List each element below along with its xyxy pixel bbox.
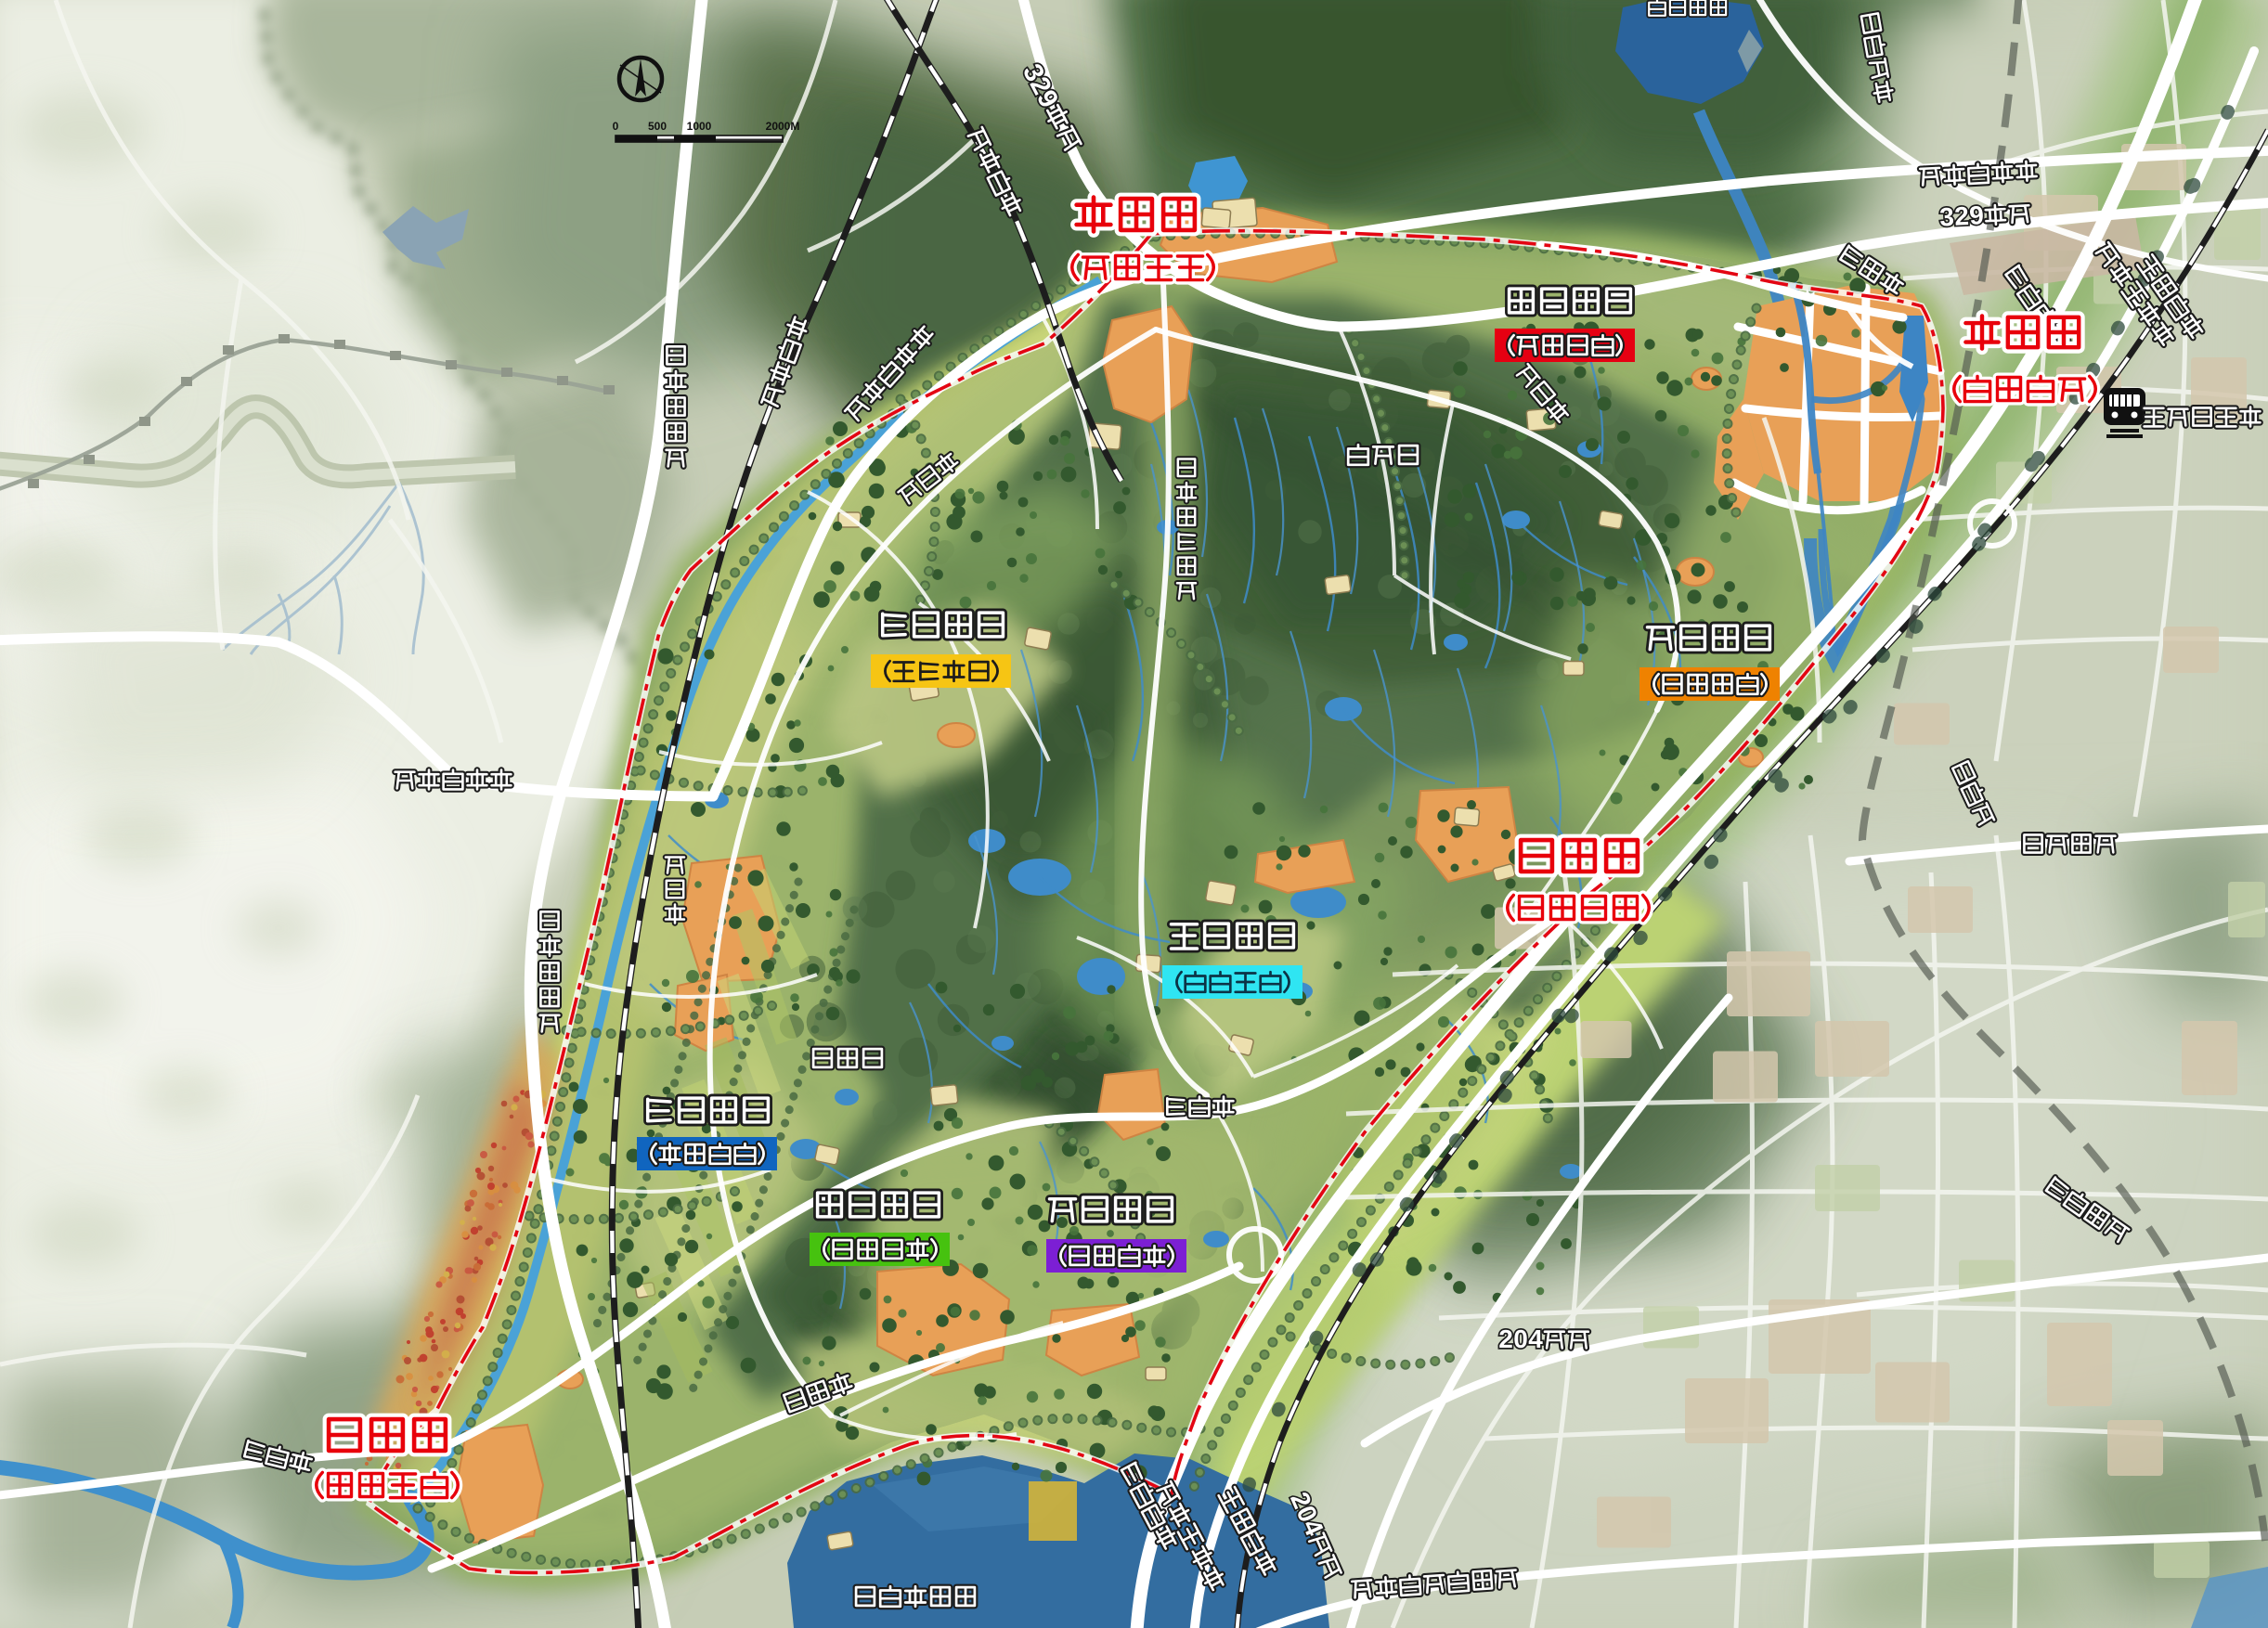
svg-text:2: 2 [1498,1324,1513,1353]
svg-text:4: 4 [1528,1324,1543,1353]
svg-text:2: 2 [1953,201,1969,231]
svg-text:0: 0 [1513,1324,1528,1353]
svg-text:3: 3 [1938,202,1954,232]
svg-text:9: 9 [1968,200,1984,230]
